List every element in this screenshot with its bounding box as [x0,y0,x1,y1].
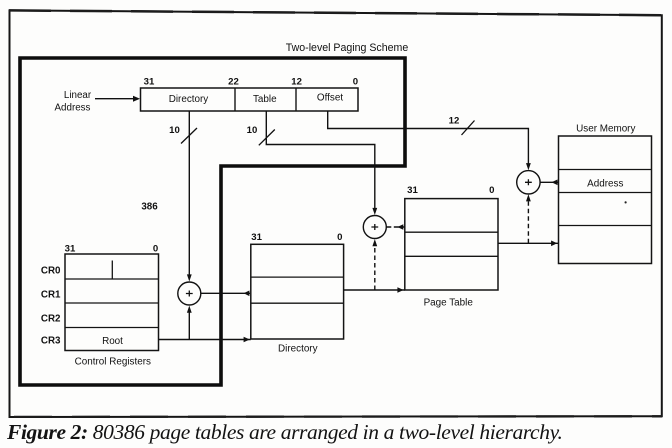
svg-text:Root: Root [102,336,123,347]
svg-text:CR1: CR1 [41,290,61,301]
svg-text:0: 0 [337,232,342,243]
svg-text:0: 0 [153,243,158,254]
svg-text:Page Table: Page Table [424,298,474,309]
svg-text:10: 10 [169,125,180,136]
svg-text:386: 386 [141,201,158,212]
svg-text:Address: Address [587,178,623,189]
svg-text:10: 10 [247,125,258,136]
svg-text:12: 12 [449,116,460,127]
svg-text:0: 0 [489,185,494,196]
svg-text:Table: Table [253,94,277,105]
svg-text:Linear: Linear [64,90,92,101]
svg-text:CR3: CR3 [41,336,61,347]
svg-text:Address: Address [55,102,91,113]
svg-text:31: 31 [407,185,418,196]
svg-text:0: 0 [353,76,358,87]
svg-text:Two-level Paging Scheme: Two-level Paging Scheme [286,42,409,54]
svg-text:31: 31 [144,76,155,87]
svg-text:31: 31 [251,232,262,243]
svg-text:22: 22 [228,76,239,87]
svg-text:User Memory: User Memory [576,124,635,135]
svg-text:31: 31 [65,243,76,254]
svg-text:Control Registers: Control Registers [75,357,151,368]
svg-text:CR2: CR2 [41,314,61,325]
svg-text:Offset: Offset [317,93,343,104]
svg-text:CR0: CR0 [41,266,61,277]
svg-text:Directory: Directory [278,344,318,355]
svg-text:12: 12 [291,76,302,87]
svg-text:Directory: Directory [169,94,209,105]
